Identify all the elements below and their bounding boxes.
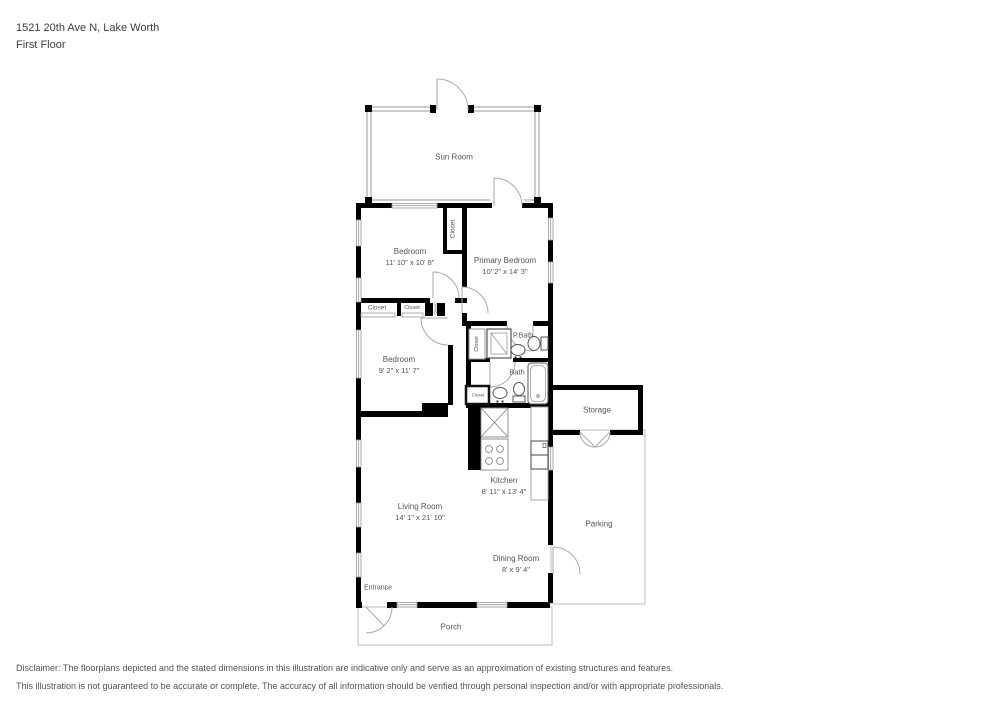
- floorplan-svg: [0, 0, 1000, 707]
- closet-label-5: Closet: [474, 336, 480, 352]
- bath-toilet: [513, 383, 525, 403]
- floorplan-page: 1521 20th Ave N, Lake Worth First Floor: [0, 0, 1000, 707]
- refrigerator: [531, 441, 548, 469]
- stove: [481, 439, 508, 470]
- bedroom-top-label: Bedroom 11' 10" x 10' 8": [386, 246, 435, 268]
- kitchen-label: Kitchen 8' 11" x 13' 4": [482, 475, 527, 497]
- bath-label: Bath: [509, 367, 524, 378]
- storage-label: Storage: [583, 405, 611, 416]
- primary-bedroom-label: Primary Bedroom 10' 2" x 14' 3": [474, 255, 536, 277]
- parking-label: Parking: [585, 519, 612, 530]
- closet-label-1: Closet: [450, 220, 457, 238]
- pbath-sink: [511, 345, 525, 359]
- porch-label: Porch: [441, 622, 462, 633]
- closet-label-4: Closet: [433, 303, 438, 314]
- floorplan-drawing: Sun Room Bedroom 11' 10" x 10' 8" Primar…: [0, 0, 1000, 707]
- living-room-label: Living Room 14' 1" x 21' 10": [395, 501, 444, 523]
- disclaimer-line-1: Disclaimer: The floorplans depicted and …: [16, 663, 673, 673]
- shower: [487, 329, 511, 358]
- prep-counter: [481, 408, 508, 437]
- bathtub: [528, 363, 548, 404]
- closet-label-3: Closet: [404, 305, 420, 311]
- bedroom-top-door: [433, 272, 459, 298]
- primary-bath-label: P.Bath: [513, 331, 533, 342]
- closet-label-6: Closet: [472, 393, 485, 398]
- dining-room-label: Dining Room 8' x 9' 4": [493, 553, 539, 575]
- bath-sink: [493, 388, 507, 403]
- entrance-label: Entrance: [364, 583, 392, 594]
- closet-label-2: Closet: [368, 305, 386, 312]
- parking-area: [551, 430, 645, 604]
- disclaimer-line-2: This illustration is not guaranteed to b…: [16, 681, 723, 691]
- bedroom-left-label: Bedroom 9' 2" x 11' 7": [379, 354, 420, 376]
- bedroom-left-door: [421, 318, 448, 345]
- sun-room-label: Sun Room: [435, 152, 473, 163]
